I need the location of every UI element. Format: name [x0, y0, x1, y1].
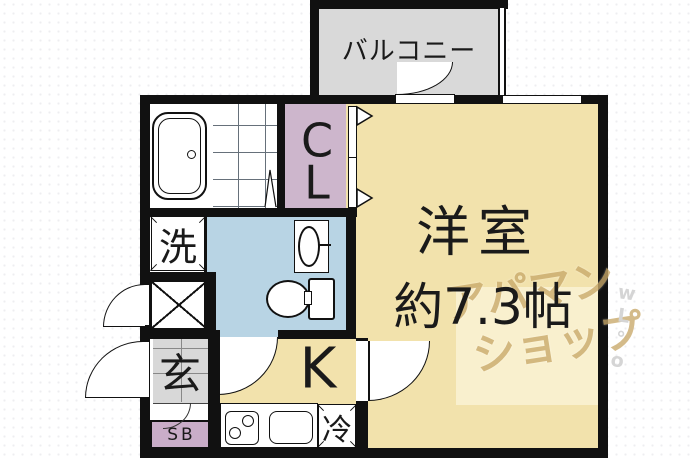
watermark-mark: o — [598, 348, 637, 376]
corner-tick — [150, 216, 157, 223]
refrigerator-label: 冷 — [322, 405, 352, 449]
wall — [346, 212, 356, 338]
shoe-box-label: SB — [164, 425, 195, 445]
window — [503, 95, 581, 104]
kitchen-sink-icon — [269, 411, 313, 444]
wall — [204, 272, 216, 338]
stove-burner-icon — [242, 415, 254, 427]
wall — [310, 0, 319, 96]
wall — [598, 95, 608, 458]
closet-door — [348, 106, 357, 208]
closet-door-divider — [349, 157, 356, 158]
bathtub-drain-icon — [187, 150, 196, 159]
corner-tick — [150, 264, 157, 271]
entrance-label: 玄 — [159, 341, 201, 402]
kitchen-label: K — [300, 337, 337, 402]
closet-label: C L — [301, 120, 333, 205]
stove-burner-icon — [229, 427, 241, 439]
toilet-handle-icon — [304, 291, 312, 305]
wall — [140, 448, 608, 458]
sink-basin-icon — [298, 226, 320, 267]
kitchen-door-opening — [356, 341, 368, 401]
wall — [277, 104, 285, 208]
utility-door-swing — [103, 284, 145, 327]
washer-space-label: 洗 — [159, 217, 197, 272]
floor-plan: アパマン ショップ w L ° o バルコニー C L 洋室 約7.3帖 洗 玄… — [0, 0, 690, 460]
balcony-railing — [498, 8, 506, 96]
closet-label-l: L — [301, 162, 333, 204]
wall — [310, 0, 508, 9]
bathroom-tile-grid — [213, 104, 277, 208]
toilet-tank-icon — [308, 278, 335, 320]
bathtub-icon — [152, 112, 207, 200]
utility-shaft-box — [150, 280, 208, 330]
wall — [204, 216, 207, 272]
vanity-sink-icon — [294, 220, 329, 273]
balcony-label: バルコニー — [342, 31, 476, 68]
western-room-size-label: 約7.3帖 — [393, 267, 573, 339]
entrance-door-swing — [85, 341, 143, 398]
balcony-door-opening — [395, 94, 455, 104]
western-room-label: 洋室 — [408, 188, 540, 267]
stove-icon — [225, 411, 259, 445]
wall — [140, 272, 208, 280]
